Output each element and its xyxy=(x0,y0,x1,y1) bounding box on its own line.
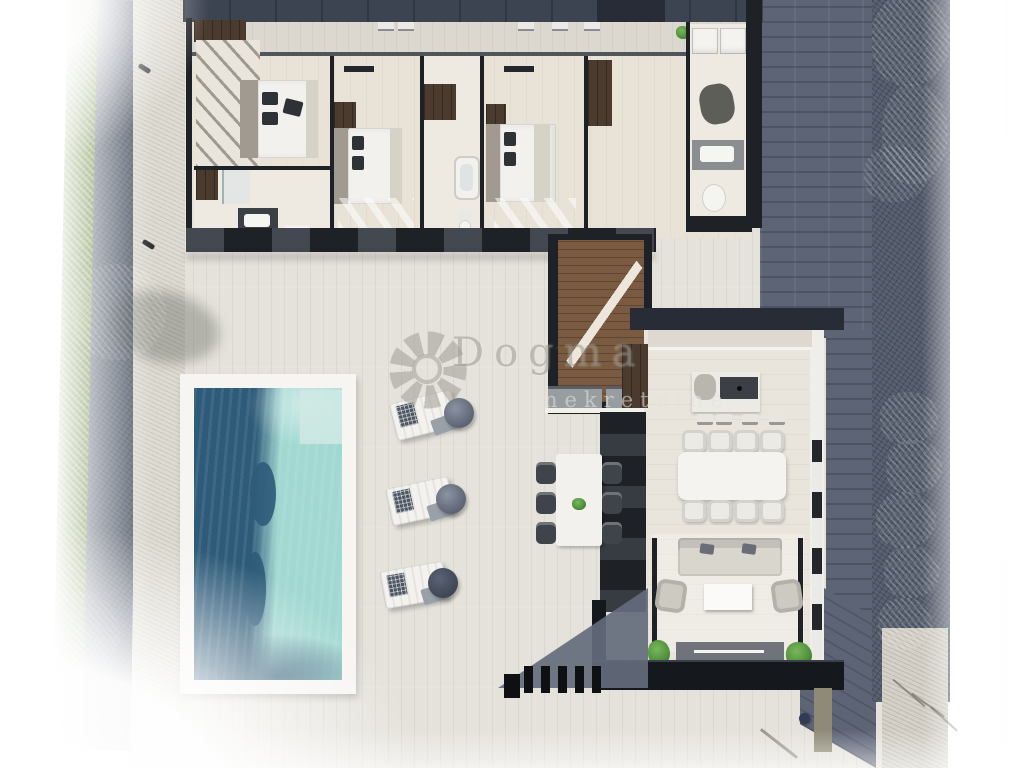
bar-stool xyxy=(742,414,758,425)
dining-table xyxy=(678,452,786,500)
armchair xyxy=(770,578,804,614)
bar-stool xyxy=(716,414,732,425)
outdoor-chair xyxy=(602,462,622,484)
wall-fragment xyxy=(1004,0,1024,140)
parapet-post xyxy=(398,22,414,31)
kitchen-counter xyxy=(648,330,812,350)
pillow xyxy=(504,132,516,146)
pool-wave xyxy=(250,462,276,526)
pergola-slat xyxy=(524,666,533,693)
dining-chair xyxy=(734,500,758,522)
tv-wall-mount xyxy=(504,66,534,72)
coffee-table xyxy=(704,584,752,610)
entry-pillar xyxy=(814,688,832,752)
ground-light xyxy=(799,713,810,724)
sofa-pillow xyxy=(699,543,714,555)
pillow xyxy=(504,152,516,166)
bar-stool xyxy=(697,414,713,425)
kitchen-north-wall xyxy=(630,308,844,330)
closet xyxy=(486,104,506,124)
bath-closet xyxy=(196,170,218,200)
dining-chair xyxy=(682,500,706,522)
dining-chair xyxy=(708,500,732,522)
dining-chair xyxy=(734,430,758,452)
sunlight-patch xyxy=(338,198,414,232)
wardrobe xyxy=(194,20,246,42)
pillow xyxy=(352,136,364,150)
sink-basin xyxy=(244,214,270,227)
roof-band xyxy=(183,0,763,22)
wall-east xyxy=(746,0,762,228)
bed-headboard xyxy=(240,80,258,158)
wall-west xyxy=(186,18,192,240)
wall-fragment xyxy=(1002,556,1024,768)
pergola-slat xyxy=(541,666,550,693)
side-table xyxy=(436,484,466,514)
parapet-post xyxy=(584,22,600,31)
parapet-post xyxy=(518,22,534,31)
tv-wall-mount xyxy=(344,66,374,72)
pergola-beam xyxy=(504,674,520,698)
east-windows xyxy=(812,440,822,686)
washer-icon xyxy=(692,28,718,54)
pool-steps xyxy=(300,390,342,444)
side-table xyxy=(428,568,458,598)
outdoor-chair xyxy=(536,462,556,484)
closet xyxy=(334,102,356,130)
tv-screen xyxy=(694,650,764,653)
floor-plan-render: Dogma nekretnine xyxy=(0,0,1024,768)
pillow xyxy=(262,112,278,125)
pillow xyxy=(262,92,278,105)
dryer-icon xyxy=(720,28,746,54)
armchair xyxy=(654,578,688,614)
tree-icon xyxy=(40,592,120,672)
blanket-fold xyxy=(534,124,550,202)
sink-basin xyxy=(700,146,734,162)
outdoor-chair xyxy=(536,492,556,514)
hall-wardrobe xyxy=(588,60,612,126)
watermark-logo-ring xyxy=(412,354,442,384)
toilet xyxy=(702,184,726,212)
outdoor-chair xyxy=(536,522,556,544)
table-centerpiece xyxy=(572,498,586,510)
sofa-pillow xyxy=(741,543,756,555)
pillow xyxy=(352,156,364,170)
utility-south-wall xyxy=(686,216,752,232)
sofa xyxy=(678,538,782,576)
toilet-tank xyxy=(458,212,472,220)
shower xyxy=(222,170,250,204)
pergola-slat xyxy=(558,666,567,693)
cooktop-knob xyxy=(737,386,742,391)
outdoor-chair xyxy=(602,492,622,514)
watermark-tagline: nekretnine xyxy=(544,388,730,412)
blanket-fold xyxy=(306,80,318,158)
bed-headboard xyxy=(486,124,500,202)
pergola-slat xyxy=(592,666,601,693)
dining-chair xyxy=(760,430,784,452)
wall-bath-bed3 xyxy=(480,56,484,238)
dining-chair xyxy=(708,430,732,452)
blanket-fold xyxy=(390,128,402,204)
lounger-towel xyxy=(386,573,408,598)
bed-headboard xyxy=(334,128,348,204)
parapet-post xyxy=(378,22,394,31)
dining-chair xyxy=(760,500,784,522)
bar-stool xyxy=(769,414,785,425)
bath-closet xyxy=(424,84,456,120)
outdoor-chair xyxy=(602,522,622,544)
bathtub-basin xyxy=(460,164,473,191)
watermark-brand: Dogma xyxy=(452,330,646,376)
walkway-left xyxy=(133,0,185,760)
parapet-post xyxy=(552,22,568,31)
dining-chair xyxy=(682,430,706,452)
sunlight-patch xyxy=(494,198,576,232)
pergola-slat xyxy=(575,666,584,693)
tree-icon xyxy=(72,264,166,360)
pool-wave xyxy=(244,552,266,626)
